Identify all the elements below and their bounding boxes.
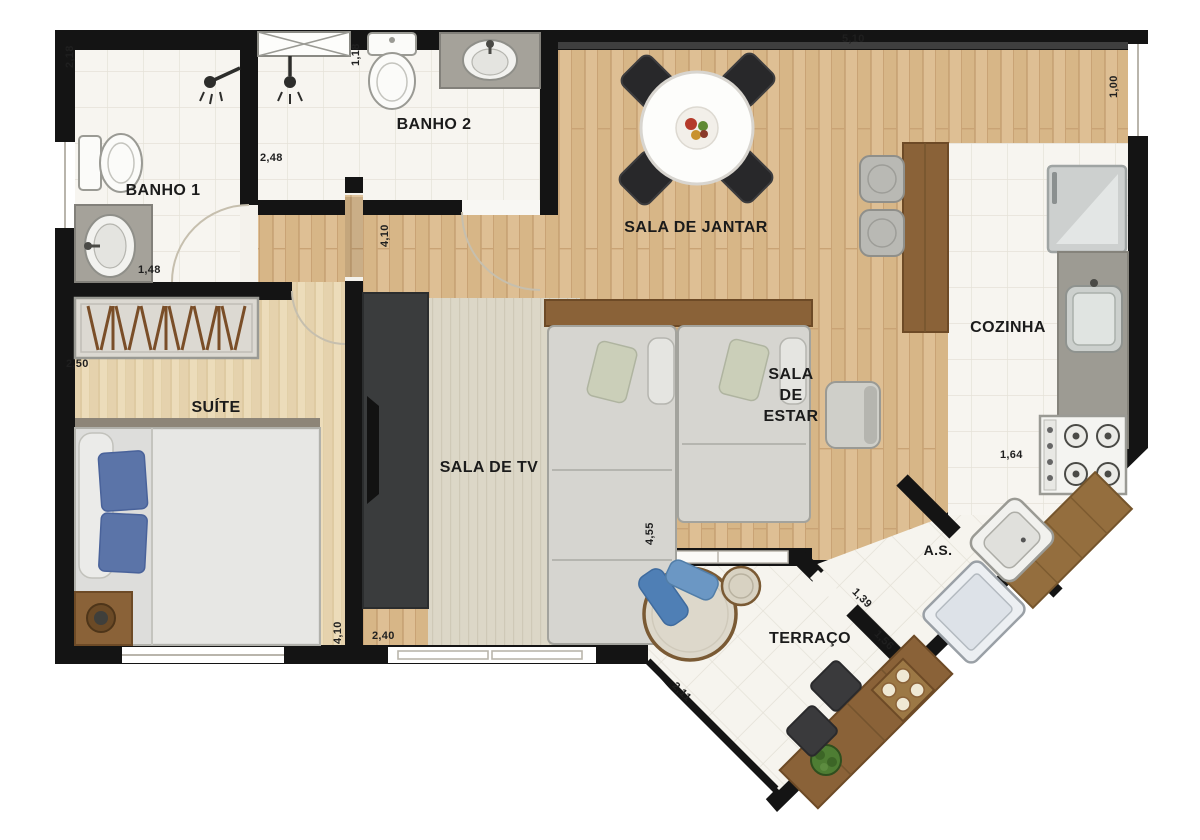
dimension-5-10: 5,10 xyxy=(842,33,865,45)
room-label-sala-de-jantar: SALA DE JANTAR xyxy=(610,218,782,239)
suite-nightstand xyxy=(75,592,132,645)
dimension-4-55: 4,55 xyxy=(644,522,656,545)
refrigerator xyxy=(1048,166,1126,252)
room-label-banho1: BANHO 1 xyxy=(115,181,211,202)
dimension-2-48: 2,48 xyxy=(260,152,283,164)
tv-panel xyxy=(363,293,428,608)
room-label-terraco: TERRAÇO xyxy=(756,629,864,650)
floor-plan-svg xyxy=(0,0,1200,840)
armchair xyxy=(826,382,880,448)
dimension-1-18: 1,18 xyxy=(350,43,362,66)
room-label-cozinha: COZINHA xyxy=(960,318,1056,339)
room-label-sala-de-tv: SALA DE TV xyxy=(428,458,550,479)
dimension-1-00: 1,00 xyxy=(1108,75,1120,98)
banho2-sink-counter xyxy=(440,33,540,88)
floor-plan-page: BANHO 1 BANHO 2 SALA DE JANTAR COZINHA S… xyxy=(0,0,1200,840)
dimension-2-50: 2,50 xyxy=(66,358,89,370)
stove xyxy=(1040,416,1126,494)
dimension-4-10-suite: 4,10 xyxy=(332,621,344,644)
room-label-suite: SUÍTE xyxy=(178,398,254,419)
dining-set xyxy=(616,50,777,207)
dimension-2-40: 2,40 xyxy=(372,630,395,642)
banho2-toilet xyxy=(368,33,416,109)
room-label-sala-de-estar: SALA DE ESTAR xyxy=(756,365,826,427)
dimension-4-10-hall: 4,10 xyxy=(379,224,391,247)
room-label-banho2: BANHO 2 xyxy=(384,115,484,136)
dimension-2-18: 2,18 xyxy=(64,45,76,68)
suite-wardrobe xyxy=(75,298,258,358)
kitchen-bar-counter xyxy=(903,143,948,332)
dimension-1-48: 1,48 xyxy=(138,264,161,276)
dimension-1-64: 1,64 xyxy=(1000,449,1023,461)
room-label-area-de-servico: A.S. xyxy=(914,541,962,559)
